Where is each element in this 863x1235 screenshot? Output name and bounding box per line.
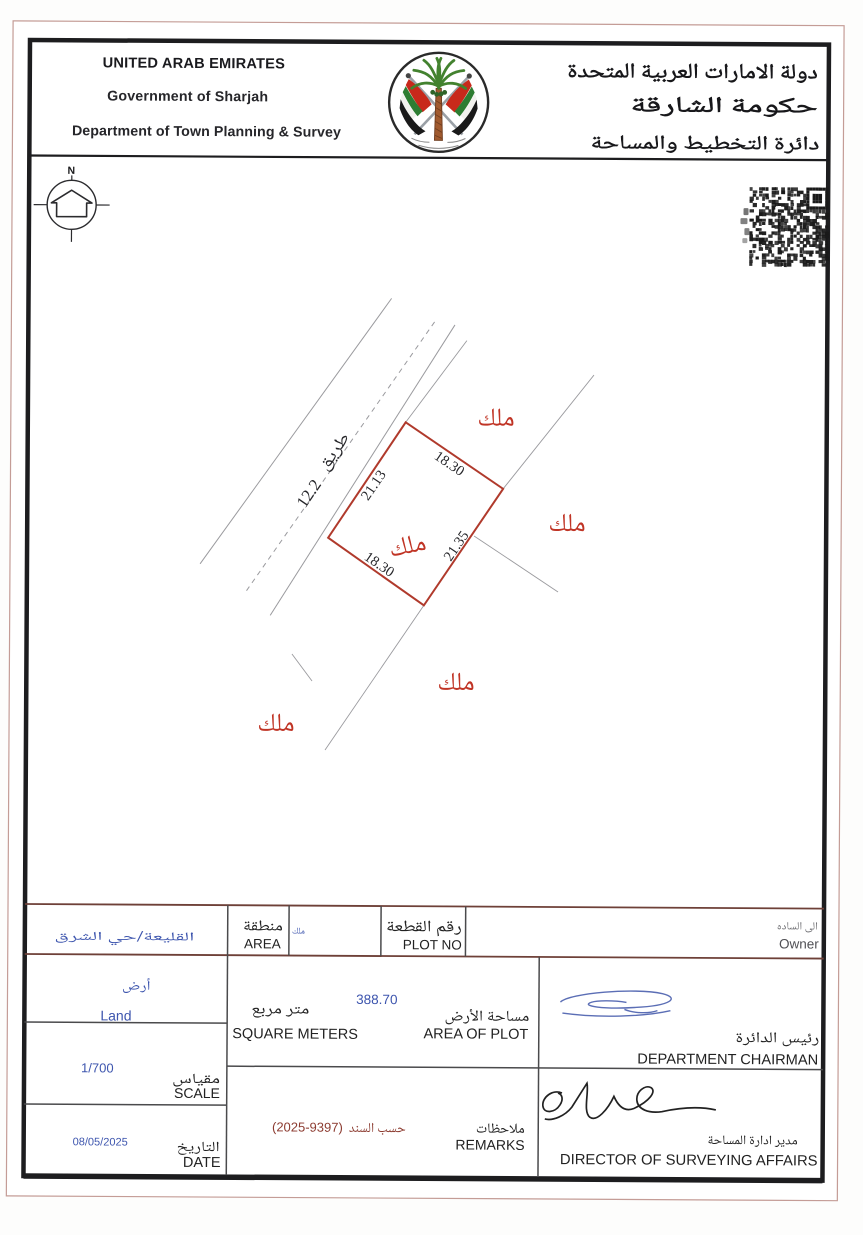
svg-text:UNITED ARAB EMIRATES: UNITED ARAB EMIRATES	[103, 55, 286, 72]
svg-text:SQUARE METERS: SQUARE METERS	[232, 1026, 358, 1043]
svg-text:(2025-9397): (2025-9397)	[272, 1119, 343, 1134]
svg-text:REMARKS: REMARKS	[455, 1136, 524, 1152]
svg-text:PLOT NO: PLOT NO	[403, 937, 462, 952]
svg-text:Land: Land	[100, 1007, 131, 1023]
svg-text:Government of Sharjah: Government of Sharjah	[107, 88, 268, 105]
svg-text:Owner: Owner	[779, 936, 819, 951]
svg-text:DEPARTMENT CHAIRMAN: DEPARTMENT CHAIRMAN	[637, 1052, 818, 1069]
svg-text:N: N	[68, 165, 76, 177]
svg-text:AREA: AREA	[244, 936, 281, 951]
svg-text:AREA OF PLOT: AREA OF PLOT	[423, 1026, 528, 1043]
svg-text:08/05/2025: 08/05/2025	[73, 1136, 128, 1148]
svg-text:DATE: DATE	[183, 1155, 221, 1171]
svg-text:SCALE: SCALE	[174, 1085, 220, 1101]
svg-text:388.70: 388.70	[356, 992, 397, 1007]
svg-text:1/700: 1/700	[81, 1060, 114, 1075]
svg-text:Department of Town Planning &: Department of Town Planning & Survey	[72, 123, 341, 141]
svg-text:DIRECTOR OF SURVEYING AFFAIRS: DIRECTOR OF SURVEYING AFFAIRS	[560, 1152, 818, 1169]
